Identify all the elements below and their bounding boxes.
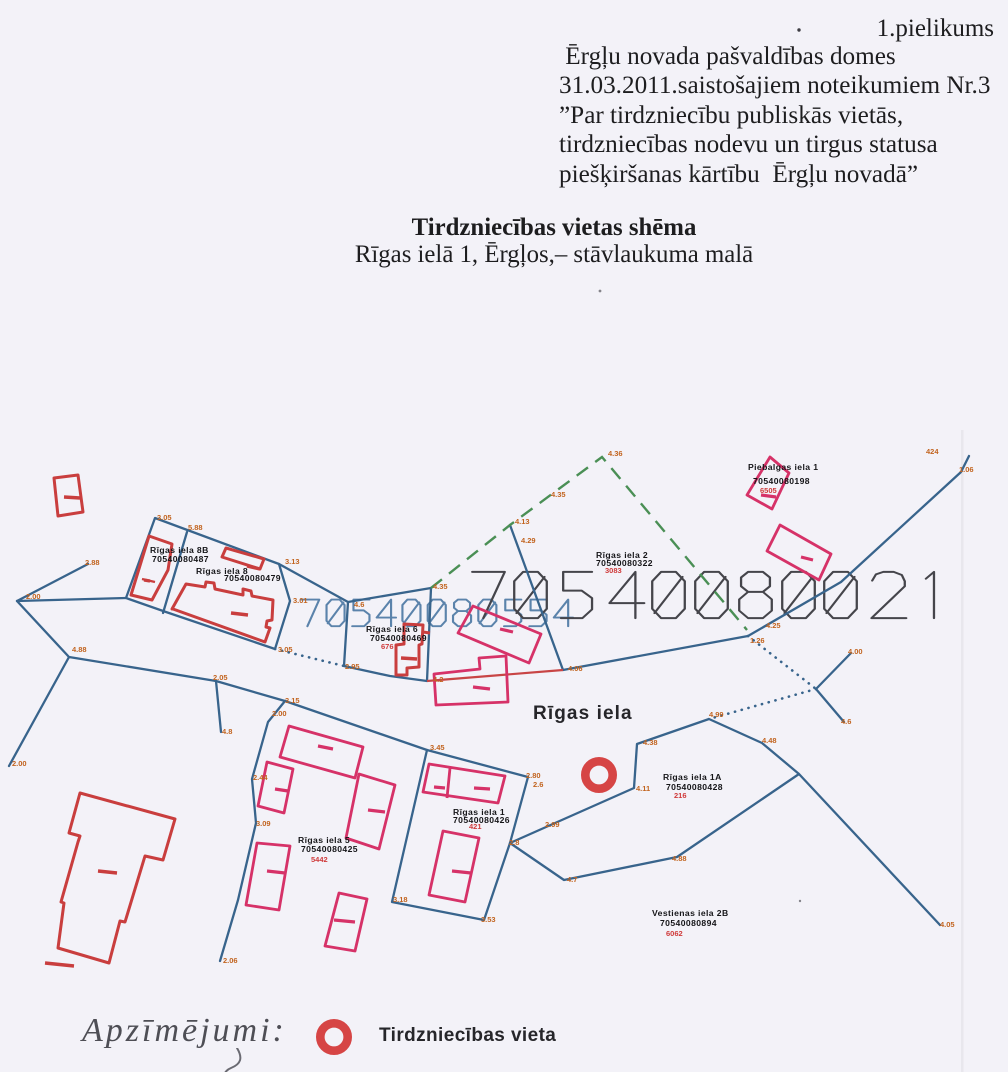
svg-text:4.88: 4.88 bbox=[672, 854, 687, 863]
svg-text:5442: 5442 bbox=[311, 855, 328, 864]
svg-text:4.25: 4.25 bbox=[766, 621, 781, 630]
svg-text:2.8: 2.8 bbox=[509, 838, 519, 847]
svg-text:4.48: 4.48 bbox=[762, 736, 777, 745]
svg-text:Vestienas iela 2B: Vestienas iela 2B bbox=[652, 908, 729, 918]
svg-text:4.36: 4.36 bbox=[608, 449, 623, 458]
svg-text:3.09: 3.09 bbox=[256, 819, 271, 828]
svg-text:216: 216 bbox=[674, 791, 687, 800]
svg-text:3.13: 3.13 bbox=[285, 557, 300, 566]
svg-text:2.00: 2.00 bbox=[272, 709, 287, 718]
svg-text:4.05: 4.05 bbox=[940, 920, 955, 929]
svg-text:Rīgas iela 1A: Rīgas iela 1A bbox=[663, 772, 722, 782]
svg-text:4.35: 4.35 bbox=[551, 490, 566, 499]
svg-text:4.00: 4.00 bbox=[848, 647, 863, 656]
svg-text:4.7: 4.7 bbox=[567, 875, 577, 884]
svg-text:70540080469: 70540080469 bbox=[370, 633, 427, 643]
svg-text:5.88: 5.88 bbox=[188, 523, 203, 532]
svg-text:4.99: 4.99 bbox=[709, 710, 724, 719]
svg-text:4.29: 4.29 bbox=[521, 536, 536, 545]
svg-text:2.05: 2.05 bbox=[213, 673, 228, 682]
svg-text:4.06: 4.06 bbox=[568, 664, 583, 673]
svg-text:676: 676 bbox=[381, 642, 394, 651]
svg-text:6505: 6505 bbox=[760, 486, 777, 495]
svg-text:Piebalgas iela 1: Piebalgas iela 1 bbox=[748, 462, 818, 472]
svg-text:2.95: 2.95 bbox=[345, 662, 360, 671]
svg-text:70540080425: 70540080425 bbox=[301, 844, 358, 854]
svg-text:3.05: 3.05 bbox=[278, 645, 293, 654]
svg-text:4.88: 4.88 bbox=[72, 645, 87, 654]
svg-text:3.45: 3.45 bbox=[430, 743, 445, 752]
svg-text:4.6: 4.6 bbox=[354, 600, 364, 609]
svg-text:70540080198: 70540080198 bbox=[753, 476, 810, 486]
svg-text:70540080487: 70540080487 bbox=[152, 554, 209, 564]
svg-text:2.00: 2.00 bbox=[12, 759, 27, 768]
svg-text:2.80: 2.80 bbox=[526, 771, 541, 780]
svg-text:4.38: 4.38 bbox=[643, 738, 658, 747]
svg-text:3.53: 3.53 bbox=[481, 915, 496, 924]
svg-text:3.01: 3.01 bbox=[293, 596, 308, 605]
svg-text:2.99: 2.99 bbox=[545, 820, 560, 829]
svg-text:2.00: 2.00 bbox=[26, 592, 41, 601]
svg-text:4.13: 4.13 bbox=[515, 517, 530, 526]
svg-text:4.2: 4.2 bbox=[433, 675, 443, 684]
svg-text:4.6: 4.6 bbox=[841, 717, 851, 726]
svg-text:70540080479: 70540080479 bbox=[224, 573, 281, 583]
svg-text:3083: 3083 bbox=[605, 566, 622, 575]
svg-text:4.8: 4.8 bbox=[222, 727, 232, 736]
svg-text:2.06: 2.06 bbox=[223, 956, 238, 965]
svg-text:424: 424 bbox=[926, 447, 939, 456]
svg-text:421: 421 bbox=[469, 822, 482, 831]
svg-text:3.05: 3.05 bbox=[157, 513, 172, 522]
svg-text:2.88: 2.88 bbox=[85, 558, 100, 567]
svg-text:4.35: 4.35 bbox=[433, 582, 448, 591]
svg-text:4.11: 4.11 bbox=[636, 784, 650, 793]
svg-text:3.18: 3.18 bbox=[393, 895, 408, 904]
svg-text:2.6: 2.6 bbox=[533, 780, 543, 789]
svg-text:1.26: 1.26 bbox=[750, 636, 765, 645]
svg-text:6062: 6062 bbox=[666, 929, 683, 938]
svg-text:3.15: 3.15 bbox=[285, 696, 300, 705]
svg-text:2.44: 2.44 bbox=[253, 773, 268, 782]
svg-text:70540080894: 70540080894 bbox=[660, 918, 717, 928]
svg-text:Rīgas iela: Rīgas iela bbox=[533, 703, 633, 724]
